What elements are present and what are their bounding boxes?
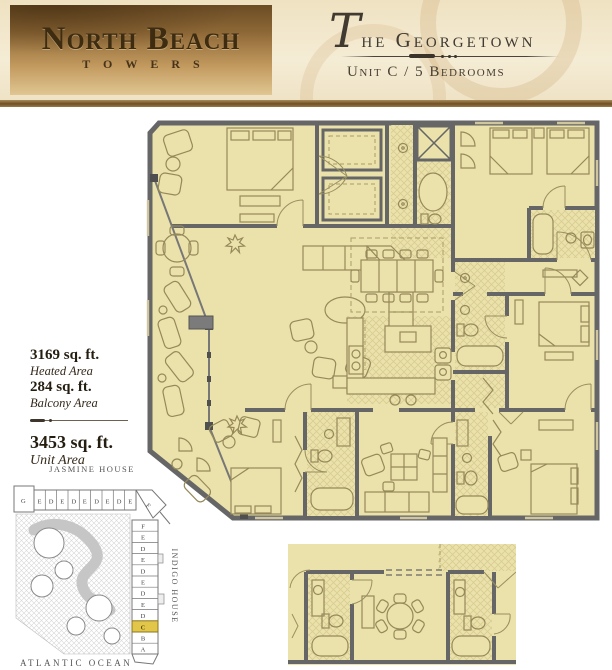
svg-text:E: E [106,499,110,506]
elevator [417,126,451,160]
svg-text:D: D [72,499,77,506]
svg-text:D: D [141,568,146,575]
logo-title: North Beach [10,22,272,56]
svg-text:E: E [60,499,64,506]
atlantic-ocean-label: ATLANTIC OCEAN [20,658,132,668]
svg-text:D: D [49,499,54,506]
unit-title: T he Georgetown [329,12,607,53]
courtyard [16,514,130,654]
svg-text:E: E [38,499,42,506]
stats-divider [30,420,128,421]
svg-text:D: D [141,591,146,598]
svg-text:E: E [141,535,145,542]
page: { "header": { "logo_title": "North Beach… [0,0,612,670]
indigo-house-label: INDIGO HOUSE [170,548,179,623]
jasmine-house-label: JASMINE HOUSE [49,464,135,474]
logo-subtitle: TOWERS [10,57,272,72]
unit-title-initial: T [329,12,360,52]
unit-title-rest: he Georgetown [361,28,535,53]
svg-text:C: C [141,624,146,631]
title-divider [341,56,559,57]
main-floor-plan [145,120,603,533]
tv-console [189,316,213,329]
unit-header: T he Georgetown Unit C / 5 Bedrooms [295,12,607,81]
svg-text:E: E [141,580,145,587]
header: North Beach TOWERS T he Georgetown Unit … [0,0,612,100]
svg-text:D: D [94,499,99,506]
indigo-house-building: F E D E D E D E D C B A [132,520,164,664]
svg-text:G: G [21,498,26,505]
unit-subtitle: Unit C / 5 Bedrooms [347,64,607,81]
svg-text:E: E [141,557,145,564]
balcony-detail-plan [288,544,516,667]
svg-text:D: D [117,499,122,506]
svg-text:E: E [83,499,87,506]
svg-text:E: E [128,499,132,506]
svg-text:B: B [141,636,146,643]
header-rule [0,100,612,107]
svg-text:A: A [141,647,146,654]
svg-text:E: E [141,602,145,609]
terrace-tile [438,544,516,571]
svg-text:D: D [141,613,146,620]
site-map: JASMINE HOUSE G E D E D E D E D E F [4,458,189,670]
svg-text:D: D [141,546,146,553]
logo-block: North Beach TOWERS [10,5,272,95]
svg-text:F: F [141,524,145,531]
